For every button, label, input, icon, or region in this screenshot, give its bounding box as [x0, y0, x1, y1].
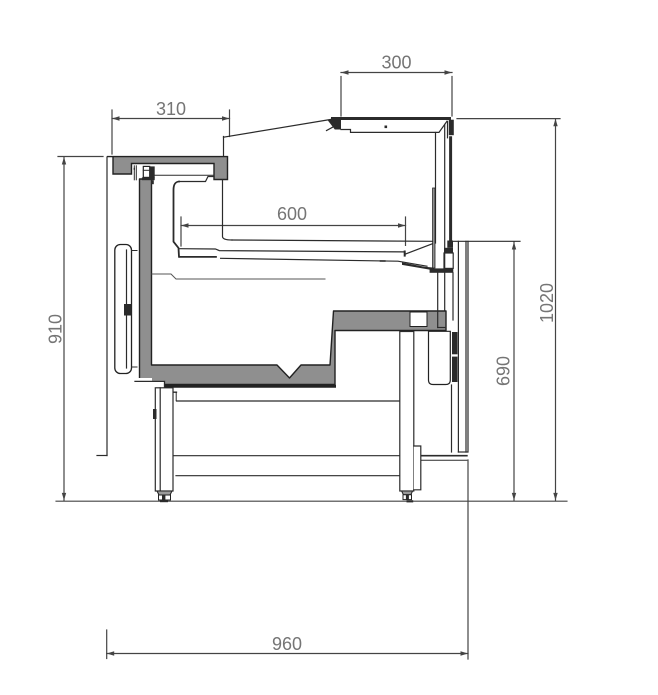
svg-text:310: 310 — [156, 99, 186, 119]
svg-text:690: 690 — [494, 356, 514, 386]
svg-text:600: 600 — [277, 204, 307, 224]
svg-text:910: 910 — [46, 314, 66, 344]
svg-text:300: 300 — [381, 53, 411, 73]
svg-text:960: 960 — [272, 634, 302, 654]
svg-text:1020: 1020 — [537, 283, 557, 323]
